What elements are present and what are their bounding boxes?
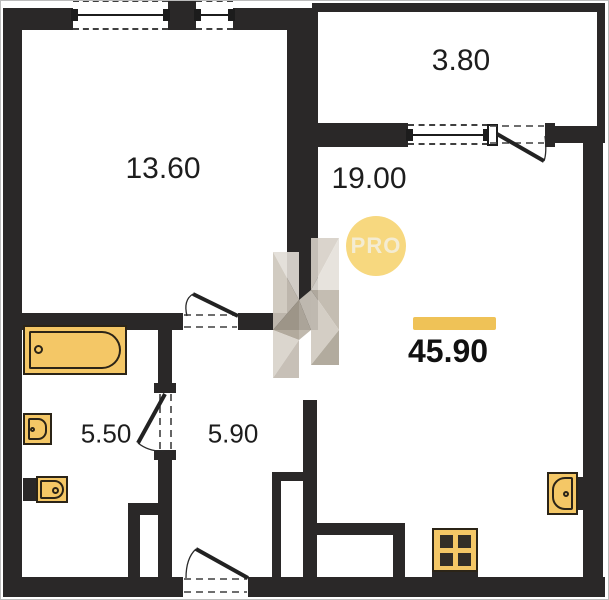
room-area-hallway: 5.90 [208,419,259,450]
room-area-bathroom: 5.50 [81,419,132,450]
door-swing-balcony [490,126,546,161]
total-area-value: 45.90 [408,333,488,370]
room-area-kitchen-living: 19.00 [331,162,406,196]
room-area-living: 13.60 [125,152,200,186]
pro-badge-label: PRO [351,233,402,259]
plan-overlay [0,0,609,600]
watermark-logo [273,238,339,378]
floor-plan: 13.60 3.80 19.00 5.50 5.90 45.90 PRO [0,0,609,600]
pro-badge: PRO [346,216,406,276]
room-area-balcony: 3.80 [432,44,490,78]
total-area-underline [413,317,496,330]
door-swing-living [184,294,238,327]
door-swing-bathroom [138,394,171,451]
door-swing-entry [184,549,248,592]
